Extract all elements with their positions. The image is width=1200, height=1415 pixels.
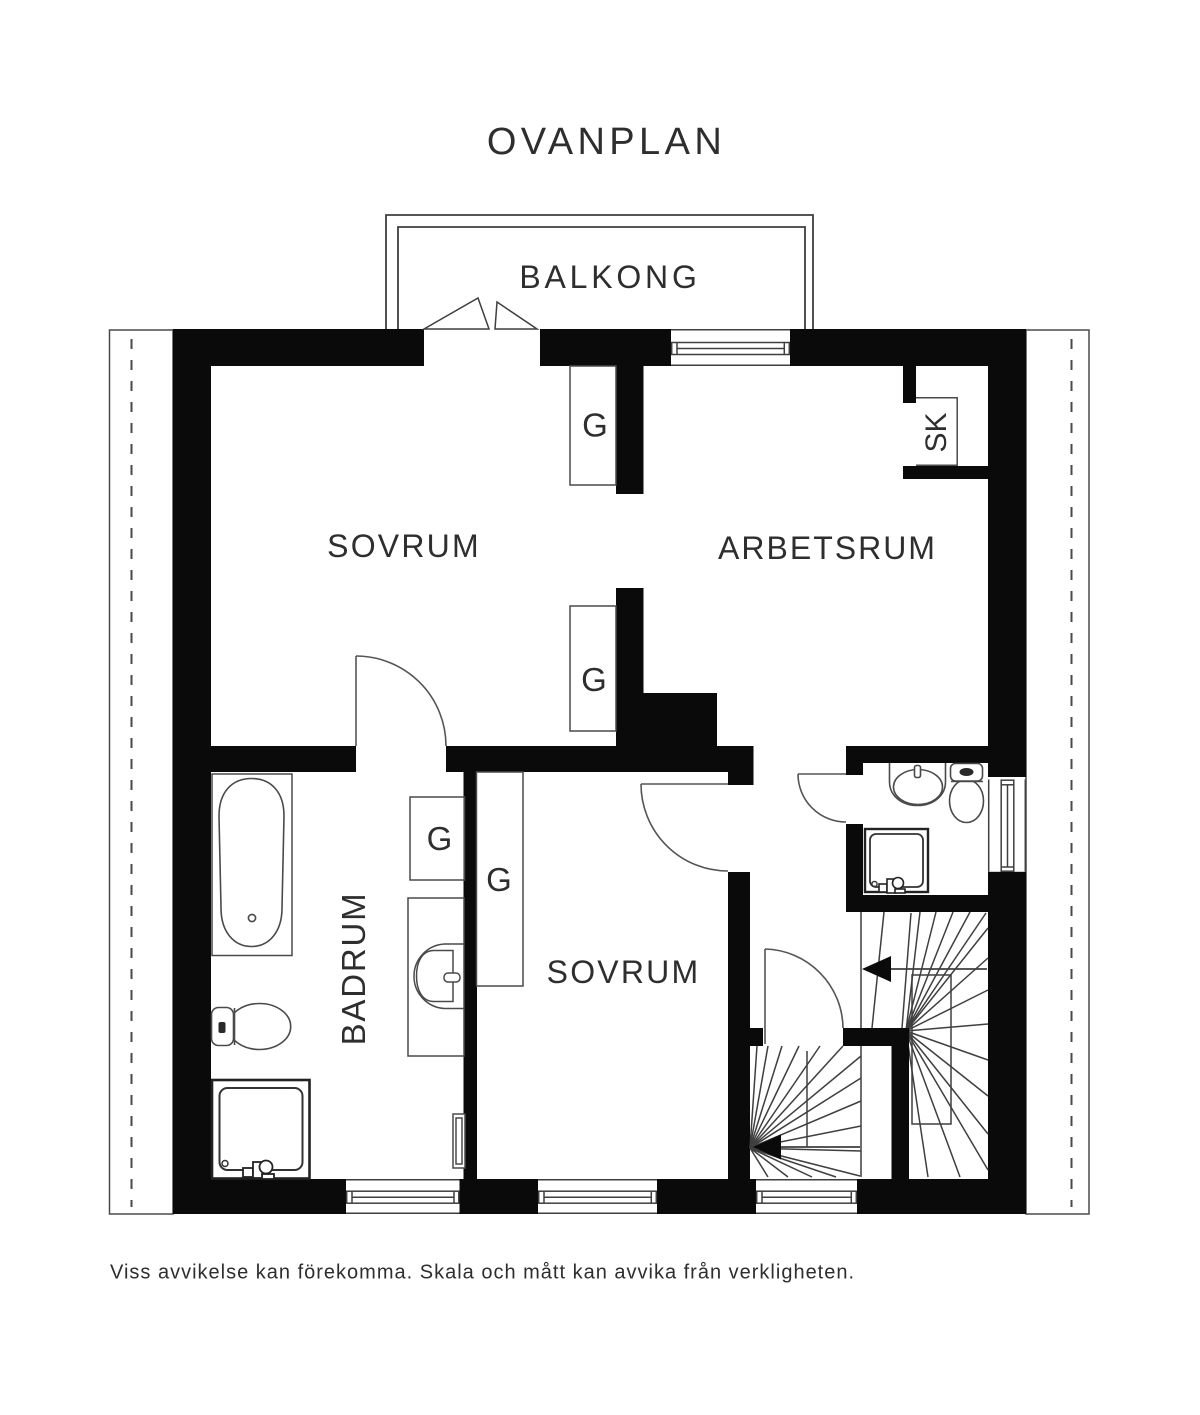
svg-text:OVANPLAN: OVANPLAN: [487, 121, 726, 163]
svg-text:SOVRUM: SOVRUM: [327, 528, 481, 564]
svg-text:BALKONG: BALKONG: [519, 259, 700, 295]
svg-text:ARBETSRUM: ARBETSRUM: [718, 530, 937, 566]
svg-text:BADRUM: BADRUM: [335, 892, 372, 1046]
svg-text:SK: SK: [920, 412, 953, 452]
svg-text:Viss avvikelse kan förekomma.: Viss avvikelse kan förekomma. Skala och …: [110, 1262, 855, 1284]
svg-text:G: G: [427, 820, 453, 857]
svg-text:G: G: [581, 661, 607, 698]
svg-text:G: G: [486, 861, 512, 898]
svg-text:SOVRUM: SOVRUM: [547, 954, 701, 990]
svg-text:G: G: [582, 407, 608, 444]
